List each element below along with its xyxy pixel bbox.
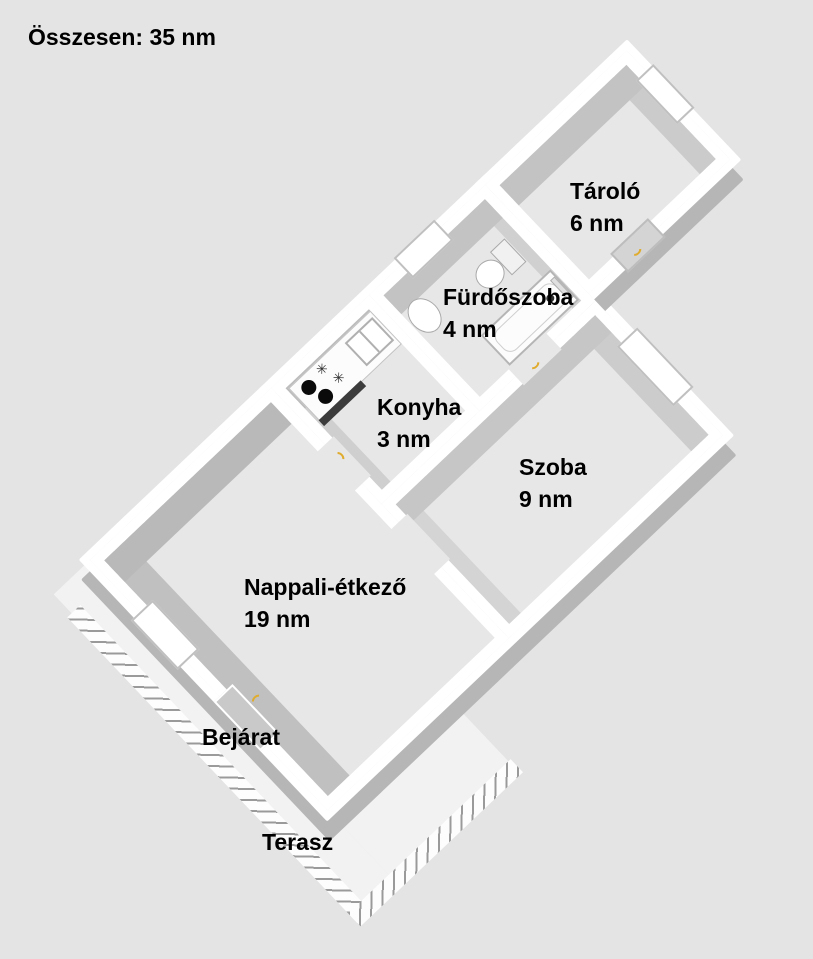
- room-area: 19 nm: [244, 603, 406, 635]
- room-label-furdoszoba: Fürdőszoba 4 nm: [443, 281, 573, 345]
- room-label-szoba: Szoba 9 nm: [519, 451, 587, 515]
- room-name: Fürdőszoba: [443, 281, 573, 313]
- room-name: Nappali-étkező: [244, 571, 406, 603]
- room-name: Konyha: [377, 391, 461, 423]
- room-label-konyha: Konyha 3 nm: [377, 391, 461, 455]
- room-name: Szoba: [519, 451, 587, 483]
- room-name: Tároló: [570, 175, 640, 207]
- room-area: 9 nm: [519, 483, 587, 515]
- room-label-tarolo: Tároló 6 nm: [570, 175, 640, 239]
- total-area-title: Összesen: 35 nm: [28, 24, 216, 51]
- annotation-bejarat: Bejárat: [202, 721, 280, 753]
- room-area: 6 nm: [570, 207, 640, 239]
- annotation-terasz: Terasz: [262, 826, 333, 858]
- room-area: 3 nm: [377, 423, 461, 455]
- room-label-nappali-etkezo: Nappali-étkező 19 nm: [244, 571, 406, 635]
- room-area: 4 nm: [443, 313, 573, 345]
- floorplan-drawing: ✳ ✳: [40, 0, 813, 949]
